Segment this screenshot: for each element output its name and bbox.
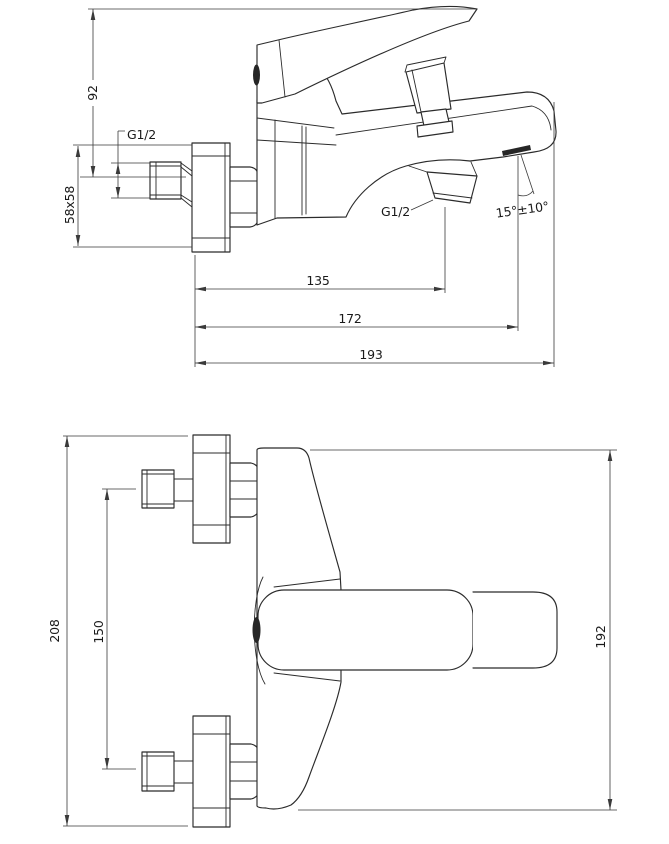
side-view: 92 58x58 G1/2 G1/2 15 bbox=[62, 7, 556, 368]
hex-nut-top bbox=[230, 463, 259, 517]
front-faucet-body bbox=[253, 448, 558, 809]
dim-label-135: 135 bbox=[306, 273, 329, 288]
dim-label-58x58: 58x58 bbox=[62, 186, 77, 224]
front-wall-connector-top bbox=[142, 435, 259, 543]
dim-label-172: 172 bbox=[338, 311, 361, 326]
front-handle-screw-cover bbox=[253, 617, 261, 643]
drawing-svg: 92 58x58 G1/2 G1/2 15 bbox=[0, 0, 669, 844]
dim-label-208: 208 bbox=[47, 619, 62, 643]
dim-label-inlet-thread: G1/2 bbox=[127, 127, 156, 142]
dim-spout-angle: 15°±10° bbox=[495, 155, 550, 221]
dim-label-193: 193 bbox=[359, 347, 382, 362]
front-wall-connector-bottom bbox=[142, 716, 259, 827]
side-faucet-body bbox=[253, 7, 556, 226]
dim-inlet-thread: G1/2 bbox=[111, 127, 156, 198]
dim-label-outlet-thread: G1/2 bbox=[381, 204, 410, 219]
inlet-thread bbox=[150, 162, 181, 199]
hex-nut bbox=[230, 167, 258, 227]
dim-label-spout-angle: 15°±10° bbox=[495, 198, 550, 220]
dim-label-92: 92 bbox=[85, 85, 100, 101]
wall-plate-top bbox=[193, 435, 230, 543]
shower-outlet bbox=[427, 172, 477, 203]
technical-drawing: 92 58x58 G1/2 G1/2 15 bbox=[0, 0, 669, 844]
dim-135: 135 bbox=[195, 207, 445, 367]
dim-150: 150 bbox=[91, 489, 136, 769]
side-wall-connector bbox=[150, 143, 258, 252]
wall-escutcheon bbox=[192, 143, 230, 252]
hex-nut-bottom bbox=[230, 744, 259, 799]
wall-plate-bottom bbox=[193, 716, 230, 827]
front-handle bbox=[258, 590, 473, 670]
dim-outlet-thread: G1/2 bbox=[381, 200, 433, 219]
front-view: 208 150 192 bbox=[47, 435, 617, 827]
handle-screw-cover bbox=[253, 65, 260, 86]
dim-label-150: 150 bbox=[91, 620, 106, 644]
dim-label-192: 192 bbox=[593, 625, 608, 648]
